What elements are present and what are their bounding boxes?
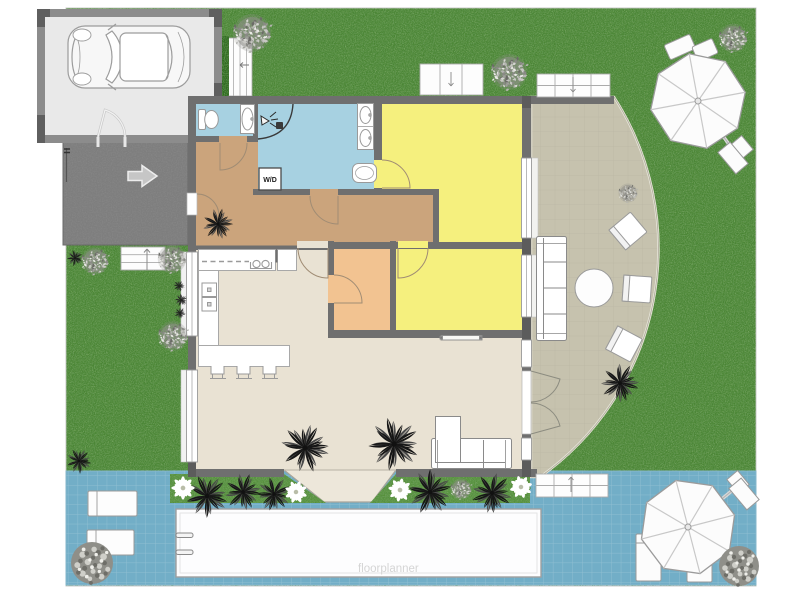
svg-text:W/D: W/D bbox=[263, 177, 277, 184]
svg-text:ﬂoorplanner: ﬂoorplanner bbox=[358, 563, 419, 575]
